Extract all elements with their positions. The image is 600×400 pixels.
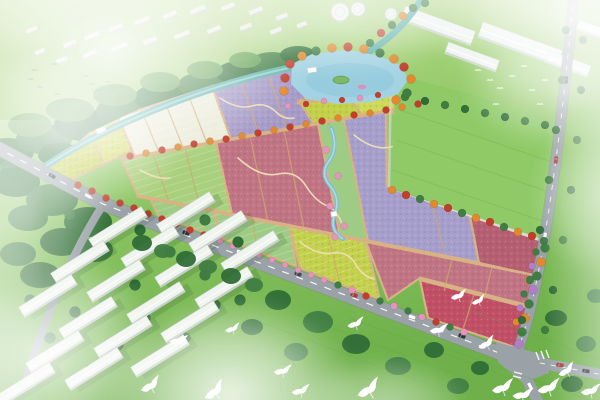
tree bbox=[319, 118, 326, 125]
tree bbox=[349, 287, 356, 294]
tree bbox=[328, 44, 337, 53]
tree bbox=[526, 276, 534, 284]
tree bbox=[536, 226, 544, 234]
aerial-rendering bbox=[0, 0, 600, 400]
storage-tank bbox=[351, 2, 365, 16]
tree-cluster bbox=[576, 336, 596, 352]
tree bbox=[525, 300, 534, 309]
tree bbox=[45, 333, 56, 344]
tree bbox=[366, 39, 374, 47]
tree bbox=[332, 234, 339, 241]
tree bbox=[303, 101, 309, 107]
tree bbox=[409, 4, 417, 12]
car bbox=[554, 156, 558, 163]
tree bbox=[376, 49, 385, 58]
tree bbox=[281, 74, 290, 83]
tree bbox=[402, 191, 410, 199]
tree-cluster bbox=[385, 357, 411, 375]
tree bbox=[419, 314, 426, 321]
tree bbox=[335, 282, 342, 289]
tree bbox=[295, 267, 301, 273]
tree bbox=[458, 209, 466, 217]
forest-clump bbox=[8, 113, 52, 137]
tree bbox=[103, 195, 110, 202]
tree-cluster bbox=[303, 311, 333, 333]
tree bbox=[461, 329, 468, 336]
tree bbox=[339, 97, 345, 103]
tree-cluster bbox=[132, 235, 152, 251]
tree-cluster bbox=[284, 343, 308, 361]
tree bbox=[444, 204, 452, 212]
tree bbox=[421, 0, 429, 7]
tree bbox=[416, 195, 424, 203]
tree bbox=[175, 144, 182, 151]
forest-clump bbox=[187, 61, 223, 79]
forest-clump bbox=[229, 52, 261, 68]
tree-cluster bbox=[447, 378, 469, 394]
tree-cluster bbox=[245, 278, 263, 292]
tree bbox=[481, 109, 489, 117]
forest-clump bbox=[140, 72, 180, 92]
tree bbox=[514, 228, 522, 236]
tree bbox=[529, 286, 538, 295]
tree bbox=[405, 308, 412, 315]
lake-deep-water bbox=[306, 63, 394, 97]
tree bbox=[269, 257, 275, 263]
tree bbox=[447, 324, 454, 331]
tree bbox=[282, 262, 288, 268]
tree bbox=[383, 107, 390, 114]
tree bbox=[255, 130, 262, 137]
tree-cluster bbox=[561, 376, 583, 392]
tree bbox=[521, 291, 528, 298]
tree bbox=[321, 98, 327, 104]
tree bbox=[515, 340, 524, 349]
tree bbox=[567, 186, 575, 194]
tree bbox=[323, 147, 330, 154]
storage-tank bbox=[385, 8, 397, 20]
tree bbox=[159, 147, 166, 154]
tree bbox=[65, 210, 76, 221]
tree bbox=[521, 117, 529, 125]
tree bbox=[235, 295, 246, 306]
tree bbox=[344, 43, 353, 52]
tree bbox=[579, 36, 587, 44]
tree bbox=[399, 12, 407, 20]
tree bbox=[308, 272, 314, 278]
tree bbox=[392, 96, 401, 105]
forest-clump bbox=[0, 242, 36, 266]
tree bbox=[500, 223, 508, 231]
tree bbox=[472, 214, 480, 222]
tree-cluster bbox=[471, 361, 489, 375]
tree bbox=[533, 249, 540, 256]
tree bbox=[537, 258, 546, 267]
forest-clump bbox=[8, 205, 48, 231]
tree bbox=[298, 52, 307, 61]
tree bbox=[285, 103, 291, 109]
tree-cluster bbox=[199, 260, 217, 274]
tree bbox=[117, 200, 124, 207]
tree bbox=[501, 113, 509, 121]
tree bbox=[541, 121, 549, 129]
tree bbox=[486, 218, 494, 226]
tree bbox=[403, 89, 412, 98]
tree bbox=[562, 26, 570, 34]
tree bbox=[391, 303, 398, 310]
tree bbox=[271, 127, 278, 134]
tree bbox=[441, 101, 449, 109]
tree bbox=[415, 101, 422, 108]
tree bbox=[430, 200, 438, 208]
tree bbox=[573, 136, 581, 144]
tree-cluster bbox=[424, 342, 444, 358]
tree bbox=[233, 237, 244, 248]
tree bbox=[388, 21, 396, 29]
tree bbox=[303, 121, 310, 128]
tree bbox=[390, 55, 399, 64]
tree bbox=[363, 293, 370, 300]
tree-cluster bbox=[154, 244, 172, 258]
tree bbox=[407, 75, 416, 84]
tree bbox=[327, 203, 334, 210]
tree bbox=[75, 182, 82, 189]
tree bbox=[335, 173, 342, 180]
tree bbox=[528, 232, 536, 240]
tree bbox=[70, 307, 81, 318]
tree bbox=[367, 110, 374, 117]
forest-clump bbox=[46, 98, 94, 122]
tree bbox=[577, 86, 585, 94]
tree bbox=[377, 298, 384, 305]
tree bbox=[558, 76, 566, 84]
scene-svg bbox=[0, 0, 600, 400]
tree bbox=[207, 138, 214, 145]
tree bbox=[461, 105, 469, 113]
lake-island-green bbox=[333, 76, 349, 84]
tree bbox=[400, 63, 409, 72]
tree bbox=[321, 277, 327, 283]
tree-cluster bbox=[221, 268, 241, 284]
tree bbox=[143, 150, 150, 157]
tree bbox=[287, 124, 294, 131]
tree bbox=[239, 133, 246, 140]
tree bbox=[223, 136, 230, 143]
tree bbox=[286, 60, 295, 69]
tree bbox=[357, 95, 363, 101]
forest-clump bbox=[93, 84, 137, 106]
tree bbox=[541, 244, 550, 253]
tree bbox=[518, 316, 526, 324]
tree bbox=[377, 29, 385, 37]
tree bbox=[552, 126, 560, 134]
tree bbox=[517, 305, 524, 312]
tree bbox=[341, 223, 348, 230]
tree bbox=[421, 97, 429, 105]
lake-island-pink bbox=[358, 85, 367, 89]
tree bbox=[187, 227, 194, 234]
tree bbox=[312, 47, 321, 56]
tree bbox=[541, 326, 549, 334]
tree bbox=[89, 188, 96, 195]
pond-pavilion bbox=[307, 67, 317, 73]
tree-cluster bbox=[265, 290, 291, 310]
tree bbox=[351, 112, 358, 119]
tree bbox=[280, 87, 289, 96]
tree-cluster bbox=[342, 334, 370, 354]
tree bbox=[529, 263, 536, 270]
tree-cluster bbox=[241, 319, 263, 335]
tree bbox=[549, 286, 557, 294]
tree-cluster bbox=[176, 251, 196, 267]
garden-gazebo bbox=[331, 211, 338, 217]
tree bbox=[388, 186, 396, 194]
tree-cluster bbox=[545, 310, 567, 326]
tree bbox=[335, 115, 342, 122]
tree bbox=[545, 176, 553, 184]
tree bbox=[433, 319, 440, 326]
tree bbox=[559, 236, 567, 244]
tree bbox=[375, 92, 381, 98]
tree bbox=[127, 153, 134, 160]
tree bbox=[191, 141, 198, 148]
storage-tank bbox=[331, 3, 349, 21]
tree bbox=[399, 104, 406, 111]
